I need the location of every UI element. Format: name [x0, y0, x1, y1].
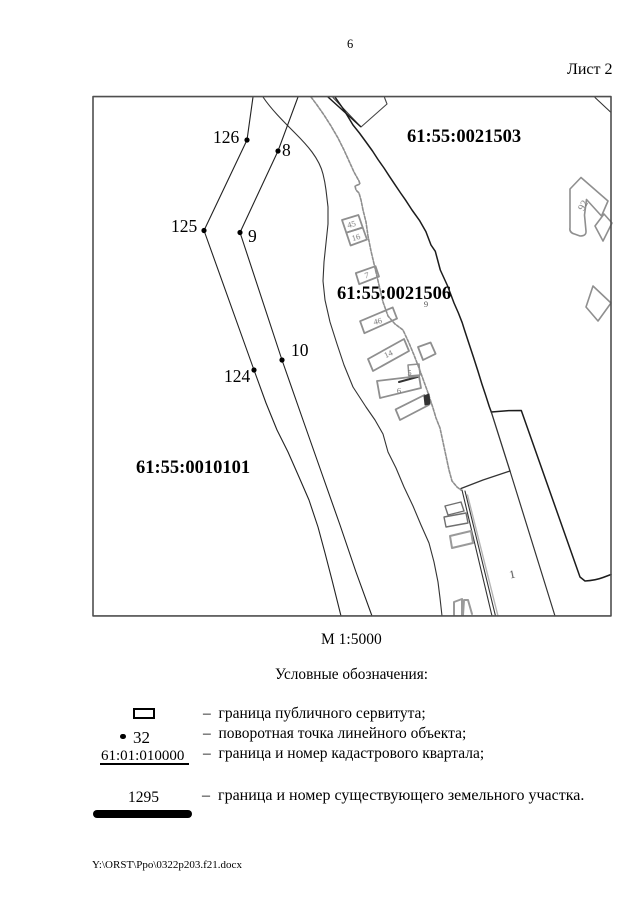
svg-text:7: 7: [364, 270, 370, 281]
svg-text:6: 6: [397, 386, 401, 396]
svg-text:14: 14: [382, 347, 395, 360]
svg-text:46: 46: [372, 315, 383, 327]
svg-text:1: 1: [508, 567, 517, 582]
svg-text:5: 5: [407, 368, 411, 378]
svg-text:45: 45: [346, 218, 357, 230]
